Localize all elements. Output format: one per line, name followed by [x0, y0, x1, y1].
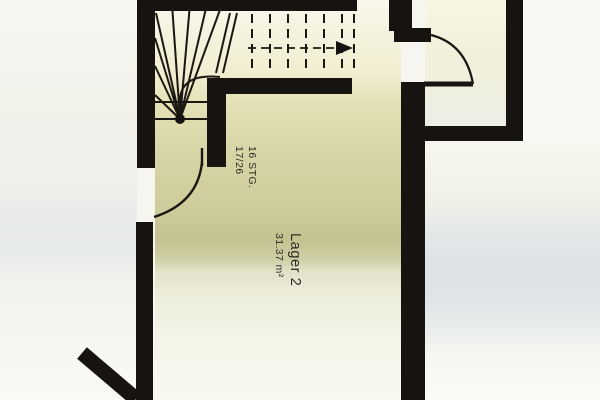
stair-count-label: 16 STG. 17/26 — [232, 146, 258, 189]
door-top-right — [424, 35, 473, 84]
wall-diagonal-segment — [82, 353, 136, 399]
stair-count-line2: 17/26 — [232, 146, 245, 189]
stair-direction-arrow-icon — [336, 41, 353, 55]
door-left — [154, 148, 202, 217]
stair-winder-fan — [155, 4, 221, 119]
stair-newel-post — [175, 114, 185, 124]
room-label: Lager 2 31.37 m² — [272, 233, 303, 286]
floor-plan-scan: 16 STG. 17/26 Lager 2 31.37 m² — [0, 0, 600, 400]
room-area-label: 31.37 m² — [272, 233, 286, 286]
stair-break-line — [216, 13, 237, 73]
plan-linework — [0, 0, 600, 400]
room-name-label: Lager 2 — [286, 233, 303, 286]
door-swing-arc-left — [154, 162, 202, 217]
door-swing-arc-top-right — [431, 35, 473, 84]
stair-count-line1: 16 STG. — [245, 146, 258, 189]
